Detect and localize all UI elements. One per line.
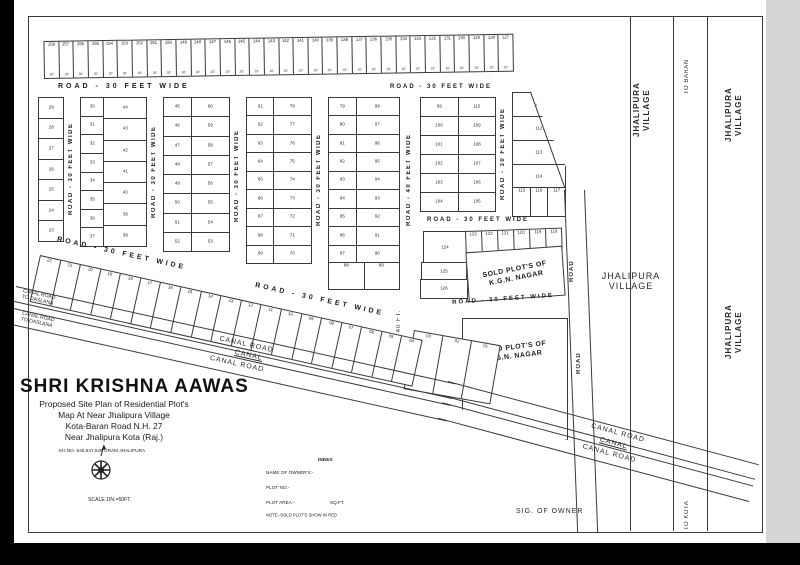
plot-cell: 103 xyxy=(421,174,458,193)
plot-cell: 115 xyxy=(513,188,531,216)
plot-cell: 92 xyxy=(357,209,399,227)
plot-cell: 63 xyxy=(247,135,273,153)
plot-cell: 123 xyxy=(466,231,483,252)
scan-left-bar xyxy=(0,0,14,565)
plot-cell: 98 xyxy=(357,98,399,116)
plot-cell: 110 xyxy=(459,98,496,117)
plot-block-e: 798081828384858687 989796959493929190 xyxy=(328,97,400,264)
plot-cell: 13420' xyxy=(396,36,411,72)
plot-block-f: 99100101102103104 110109108107106105 xyxy=(420,97,496,212)
plot-cell: 35 xyxy=(81,191,103,210)
plot-126: 126 xyxy=(420,279,468,299)
plot-cell: 61 xyxy=(247,98,273,116)
village-label-right-bottom: JHALIPURA VILLAGE xyxy=(724,292,744,372)
index-note: NOTE:-SOLD PLOT'S SHOW IN RED xyxy=(266,504,368,522)
plot-cell: 77 xyxy=(274,116,311,134)
plot-cell: 96 xyxy=(357,135,399,153)
plot-cell: 56 xyxy=(192,175,229,194)
plot-cell: 93 xyxy=(357,190,399,208)
plot-cell: 62 xyxy=(247,116,273,134)
vertical-road-5: ROAD - 40 FEET WIDE xyxy=(398,97,420,262)
plot-cell: 30 xyxy=(81,98,103,117)
plot-cell: 45 xyxy=(164,98,191,117)
plot-cell: 43 xyxy=(104,119,146,140)
plot-cell: 59 xyxy=(192,117,229,136)
scan-edge-strip xyxy=(766,0,800,543)
plot-cell: 12920' xyxy=(469,35,484,71)
plot-cell: 12820' xyxy=(484,35,499,71)
plot-cell: 14820' xyxy=(191,39,206,75)
plot-cell: 105 xyxy=(459,193,496,211)
plot-cell: 57 xyxy=(192,156,229,175)
plot-cell: 81 xyxy=(329,135,356,153)
plot-cell: 64 xyxy=(247,153,273,171)
plot-cell: 12720' xyxy=(499,35,513,71)
vertical-road-6: ROAD - 30 FEET WIDE xyxy=(494,97,512,210)
plot-cell: 32 xyxy=(81,135,103,154)
plot-cell: 13920' xyxy=(323,37,338,73)
plot-cell: 48 xyxy=(164,156,191,175)
plot-block-a: 29282726252423 xyxy=(38,97,64,242)
plot-cell: 14320' xyxy=(264,38,279,74)
plot-cell: 47 xyxy=(164,137,191,156)
plot-cell: 36 xyxy=(81,210,103,229)
plot-cell: 13820' xyxy=(338,37,353,73)
village-label-center: JHALIPURA VILLAGE xyxy=(590,271,672,291)
plot-cell: 15020' xyxy=(162,40,177,76)
village-line1: JHALIPURA xyxy=(632,83,641,138)
plot-cell: 68 xyxy=(247,227,273,245)
plot-cell: 51 xyxy=(164,214,191,233)
plot-cell: 79 xyxy=(329,98,356,116)
vertical-road-3: ROAD - 30 FEET WIDE xyxy=(228,97,246,255)
plot-cell: 84 xyxy=(329,190,356,208)
plot-cell: 101 xyxy=(421,136,458,155)
plot-cell: 100 xyxy=(421,117,458,136)
plot-cell: 88 xyxy=(329,263,365,289)
plot-cell: 27 xyxy=(39,139,63,160)
plot-cell: 14620' xyxy=(220,39,235,75)
signature-of-owner: SIG. OF OWNER xyxy=(516,508,583,515)
plot-cell: 33 xyxy=(81,154,103,173)
village-label-right-top: JHALIPURA VILLAGE xyxy=(724,75,744,155)
plot-cell: 49 xyxy=(164,175,191,194)
plot-cell: 74 xyxy=(274,172,311,190)
plot-cell: 13520' xyxy=(381,36,396,72)
subtitle-line2: Map At Near Jhalipura Village xyxy=(14,410,214,421)
plan-title: SHRI KRISHNA AAWAS xyxy=(20,376,249,398)
plot-cell: 15620' xyxy=(74,41,89,77)
plot-cell: 14120' xyxy=(294,38,309,74)
plot-cell: 15320' xyxy=(118,41,133,77)
plot-cell: 15820' xyxy=(44,42,59,78)
plot-cell: 73 xyxy=(274,190,311,208)
plot-cell: 14220' xyxy=(279,38,294,74)
site-plan-scan: JHALIPURA VILLAGE JHALIPURA VILLAGE JHAL… xyxy=(0,0,800,565)
plot-cell: 15220' xyxy=(132,40,147,76)
road-word-upper: ROAD xyxy=(569,250,575,282)
plot-cell: 13320' xyxy=(411,36,426,72)
to-baran-label: TO BARAN xyxy=(684,46,690,94)
plot-cell: 69 xyxy=(247,246,273,263)
plot-cell: 76 xyxy=(274,135,311,153)
plot-cell: 41 xyxy=(104,162,146,183)
vertical-road-1: ROAD - 30 FEET WIDE xyxy=(62,97,80,240)
subtitle-line3: Kota-Baran Road N.H. 27 xyxy=(14,421,214,432)
plot-cell: 58 xyxy=(192,137,229,156)
plot-cell: 97 xyxy=(357,116,399,134)
scale-note: SCALE 1IN.=50FT. xyxy=(58,488,168,506)
plot-cell: 104 xyxy=(421,193,458,211)
plot-cell: 106 xyxy=(459,174,496,193)
plot-cell: 15520' xyxy=(88,41,103,77)
plot-cell: 39 xyxy=(104,204,146,225)
plot-cell: 13620' xyxy=(367,37,382,73)
plot-block-e-bottom: 8889 xyxy=(328,262,400,290)
plot-cell: 53 xyxy=(192,233,229,251)
road-label-top-right: ROAD - 30 FEET WIDE xyxy=(390,84,492,90)
plot-cell: 91 xyxy=(357,227,399,245)
plot-cell: 44 xyxy=(104,98,146,119)
plot-cell: 50 xyxy=(164,194,191,213)
plot-cell: 15720' xyxy=(59,42,74,78)
plot-cell: 107 xyxy=(459,155,496,174)
road-label-mid-right: ROAD - 30 FEET WIDE xyxy=(427,217,529,223)
plot-cell: 60 xyxy=(192,98,229,117)
plot-cell: 99 xyxy=(421,98,458,117)
plot-cell: 85 xyxy=(329,209,356,227)
plot-cell: 52 xyxy=(164,233,191,251)
plot-cell: 42 xyxy=(104,141,146,162)
plot-cell: 14720' xyxy=(206,39,221,75)
subtitle-line4: Near Jhalipura Kota (Raj.) xyxy=(14,432,214,443)
plot-block-b: 3031323334353637 44434241403938 xyxy=(80,97,147,247)
plot-cell: 31 xyxy=(81,117,103,136)
plot-cell: 13120' xyxy=(440,36,455,72)
village-label-left-column: JHALIPURA VILLAGE xyxy=(632,70,652,150)
plot-cell: 38 xyxy=(104,226,146,246)
plot-cell: 40 xyxy=(104,183,146,204)
plot-cell: 117 xyxy=(548,188,565,216)
plot-cell: 82 xyxy=(329,153,356,171)
plot-cell: 80 xyxy=(329,116,356,134)
plot-cell: 46 xyxy=(164,117,191,136)
plot-cell: 14920' xyxy=(176,40,191,76)
compass-icon xyxy=(84,444,118,484)
plot-cell: 29 xyxy=(39,98,63,119)
top-plot-strip: 15820'15720'15620'15520'15420'15320'1522… xyxy=(43,34,514,79)
plot-block-g-bottom: 115116117 xyxy=(512,187,566,217)
plot-cell: 108 xyxy=(459,136,496,155)
plot-cell: 116 xyxy=(531,188,549,216)
plot-cell: 71 xyxy=(274,227,311,245)
plot-cell: 15120' xyxy=(147,40,162,76)
village-line2: VILLAGE xyxy=(642,89,651,131)
to-kota-label: TO KOTA xyxy=(684,482,690,530)
plot-cell: 87 xyxy=(329,246,356,263)
plot-cell: 83 xyxy=(329,172,356,190)
subtitle-line1: Proposed Site Plan of Residential Plot's xyxy=(14,399,214,410)
plot-cell: 25 xyxy=(39,180,63,201)
plot-cell: 13720' xyxy=(352,37,367,73)
plot-cell: 90 xyxy=(357,246,399,263)
plot-cell: 26 xyxy=(39,160,63,181)
plot-cell: 86 xyxy=(329,227,356,245)
plot-124: 124 xyxy=(423,231,467,264)
plot-cell: 15420' xyxy=(103,41,118,77)
plot-cell: 65 xyxy=(247,172,273,190)
plot-cell: 121 xyxy=(498,230,515,251)
plot-cell: 13220' xyxy=(425,36,440,72)
plot-block-c: 4546474849505152 6059585756555453 xyxy=(163,97,230,252)
plot-cell: 13020' xyxy=(455,35,470,71)
plot-cell: 14520' xyxy=(235,39,250,75)
plot-cell: 54 xyxy=(192,214,229,233)
plot-cell: 102 xyxy=(421,155,458,174)
plot-cell: 72 xyxy=(274,209,311,227)
vertical-road-2: ROAD - 30 FEET WIDE xyxy=(145,97,163,247)
road-word-lower: ROAD xyxy=(576,342,582,374)
plot-cell: 14420' xyxy=(250,39,265,75)
plot-cell: 78 xyxy=(274,98,311,116)
plot-cell: 95 xyxy=(357,153,399,171)
plot-cell: 122 xyxy=(482,231,499,252)
scan-bottom-bar xyxy=(0,543,800,565)
plot-cell: 109 xyxy=(459,117,496,136)
plot-cell: 75 xyxy=(274,153,311,171)
plot-cell: 89 xyxy=(365,263,400,289)
plot-block-d: 616263646566676869 787776757473727170 xyxy=(246,97,312,264)
plot-cell: 55 xyxy=(192,194,229,213)
plot-cell: 67 xyxy=(247,209,273,227)
vertical-road-4: ROAD - 30 FEET WIDE xyxy=(310,97,328,262)
plot-cell: 34 xyxy=(81,173,103,192)
plot-cell: 94 xyxy=(357,172,399,190)
plot-cell: 14020' xyxy=(308,38,323,74)
plot-cell: 66 xyxy=(247,190,273,208)
plot-cell: 24 xyxy=(39,201,63,222)
road-label-top-left: ROAD - 30 FEET WIDE xyxy=(58,83,190,90)
plot-cell: 70 xyxy=(274,246,311,263)
plot-cell: 28 xyxy=(39,119,63,140)
